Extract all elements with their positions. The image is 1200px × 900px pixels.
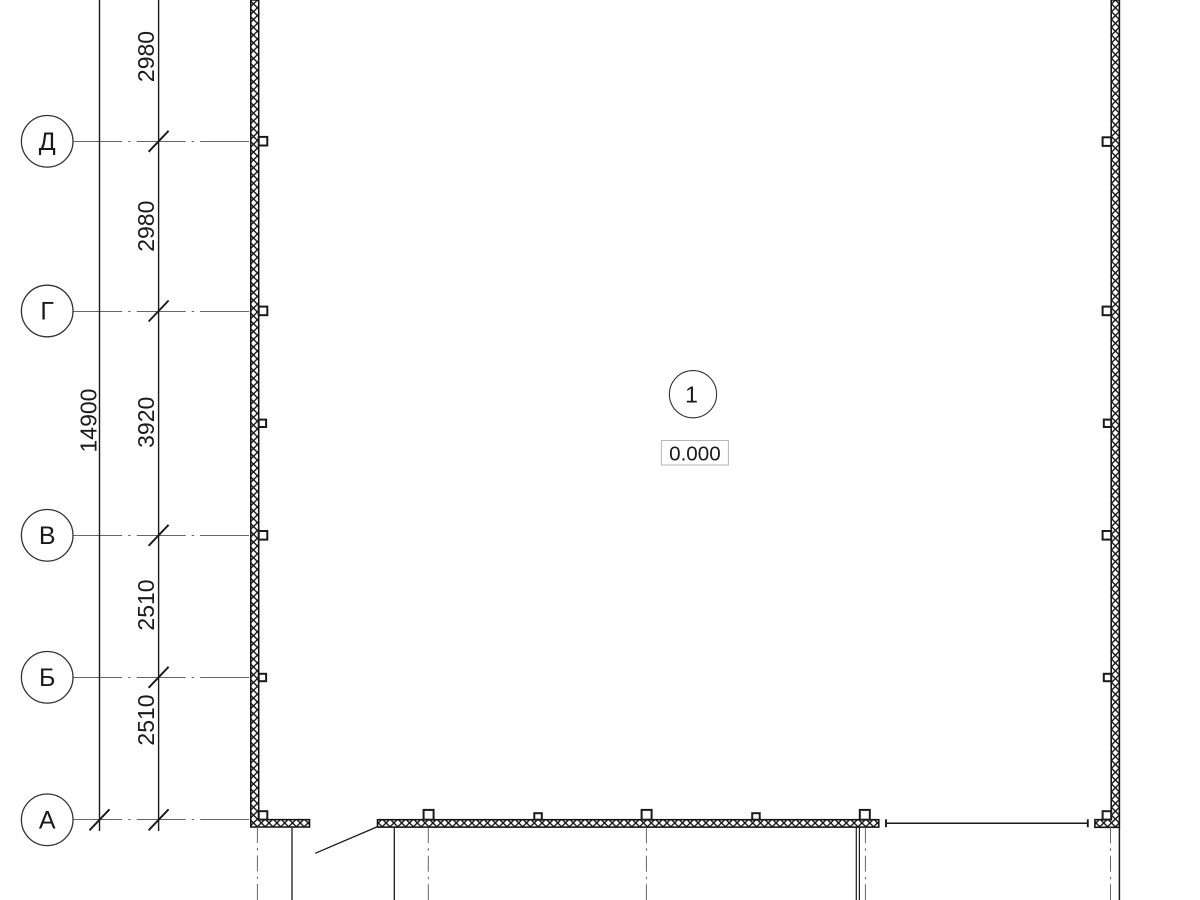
svg-text:14900: 14900 — [76, 389, 102, 453]
svg-text:Г: Г — [40, 298, 54, 326]
svg-text:Б: Б — [39, 664, 55, 692]
svg-text:1: 1 — [685, 382, 698, 408]
svg-text:Д: Д — [39, 128, 56, 156]
svg-text:2510: 2510 — [133, 694, 159, 745]
svg-text:А: А — [39, 807, 56, 835]
svg-text:0.000: 0.000 — [669, 442, 721, 465]
svg-text:2980: 2980 — [133, 31, 159, 82]
svg-text:3920: 3920 — [133, 397, 159, 448]
svg-text:2510: 2510 — [133, 579, 159, 630]
svg-text:2980: 2980 — [133, 201, 159, 252]
svg-text:В: В — [39, 522, 56, 550]
